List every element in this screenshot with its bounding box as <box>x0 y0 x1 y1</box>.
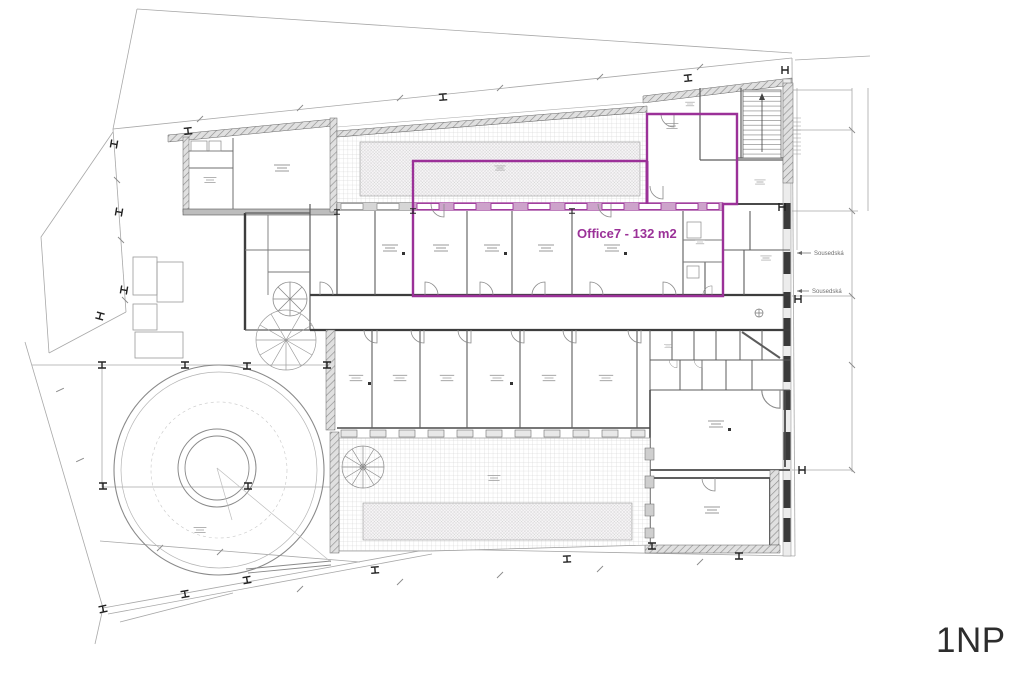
spiral-stair-large <box>256 310 316 370</box>
neighbor-annotations: Sousedská Sousedská <box>797 251 844 295</box>
floor-plan-image: Office7 - 132 m2 Sousedská Sousedská 1NP <box>0 0 1024 682</box>
neighbor-note-2: Sousedská <box>812 289 842 295</box>
lower-right-block <box>645 309 790 553</box>
circular-ramp <box>114 365 331 575</box>
office7-area-label: Office7 - 132 m2 <box>577 226 677 241</box>
top-right-block <box>643 78 792 204</box>
south-wing <box>326 330 650 437</box>
floor-level-label: 1NP <box>936 621 1006 660</box>
upper-left-block <box>168 118 337 215</box>
bottom-terrace <box>194 432 654 553</box>
floor-plan-svg: Office7 - 132 m2 Sousedská Sousedská 1NP <box>0 0 1024 682</box>
neighbor-note-1: Sousedská <box>814 251 844 257</box>
left-mid-block <box>245 204 337 370</box>
right-wall-band <box>783 79 801 556</box>
top-terrace <box>337 102 647 204</box>
north-wing <box>310 203 790 331</box>
courtyard-structures <box>133 257 183 358</box>
spiral-stair-terrace <box>342 446 384 488</box>
